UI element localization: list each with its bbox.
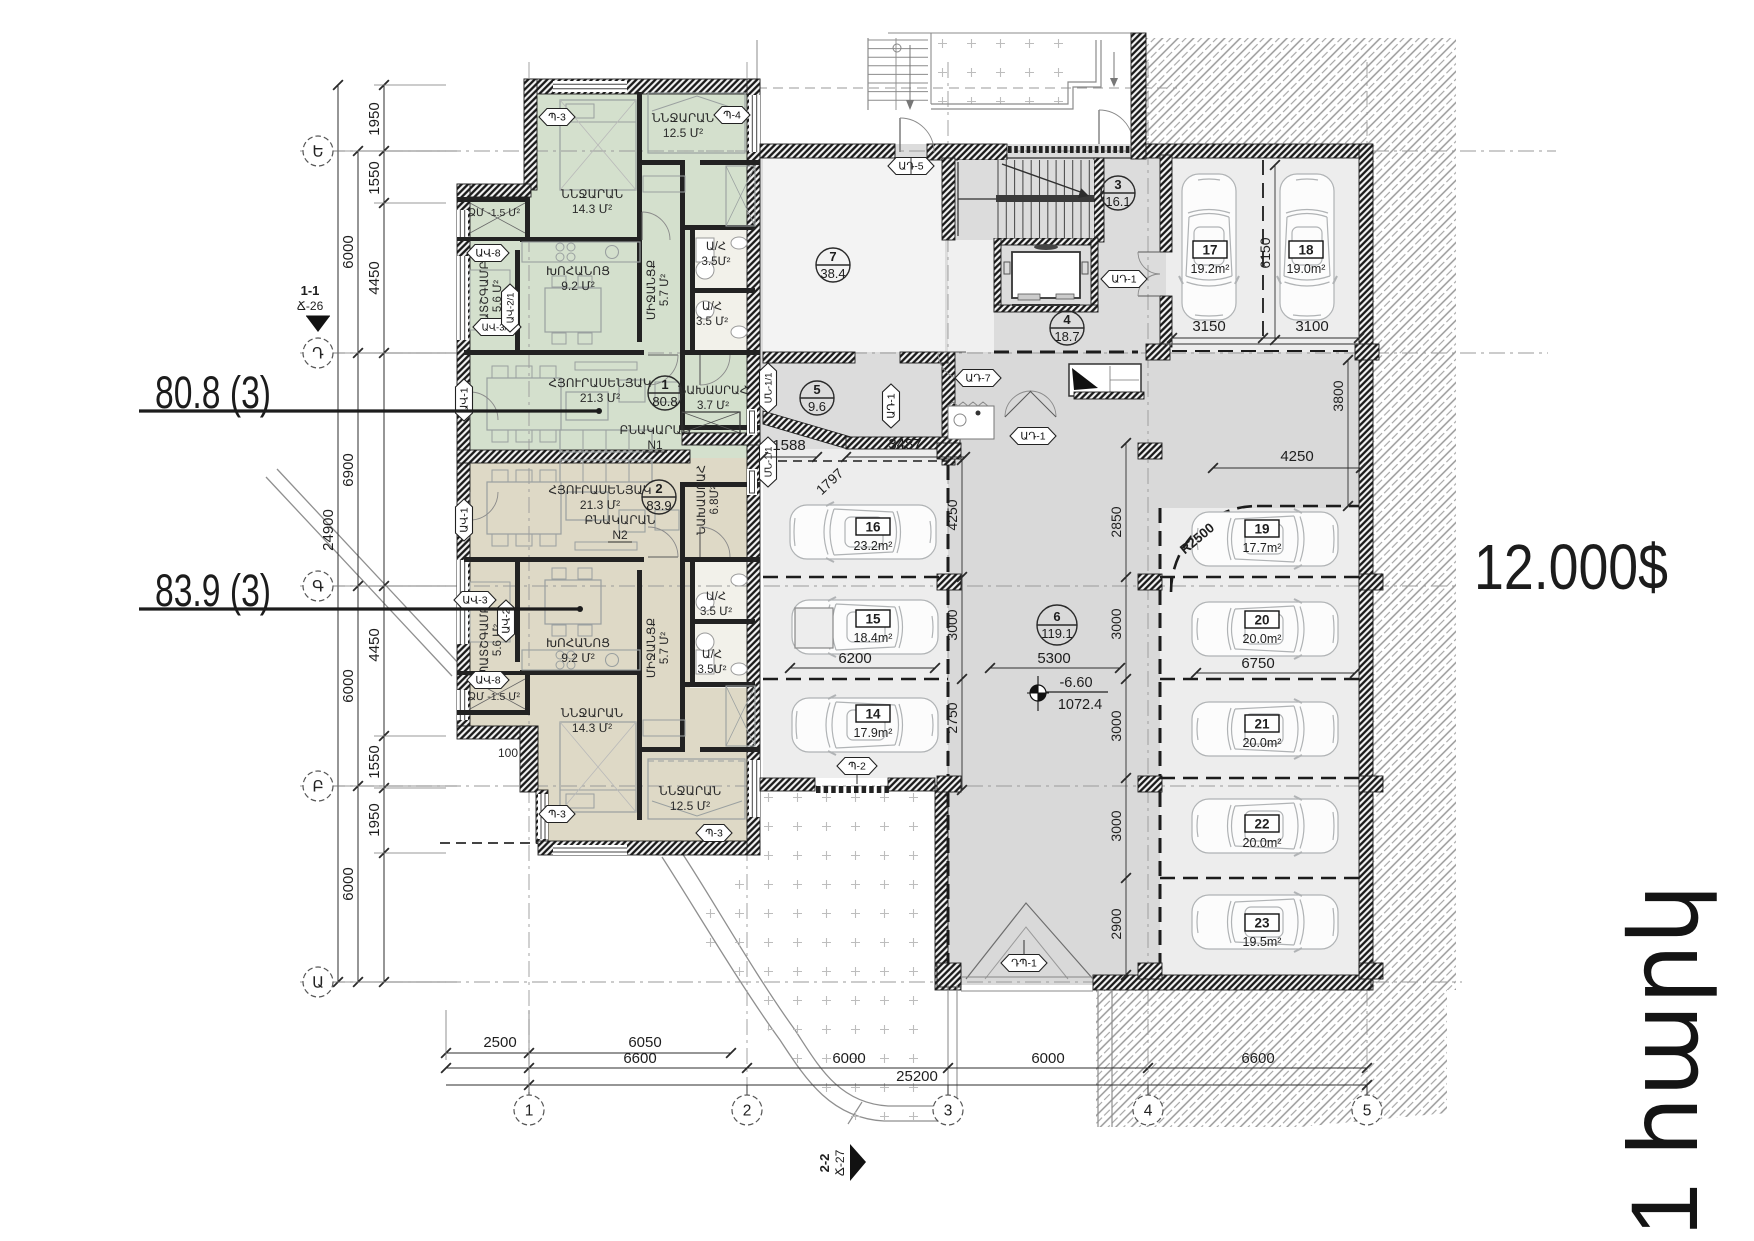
svg-text:20.0m²: 20.0m² xyxy=(1243,736,1282,750)
svg-text:19.0m²: 19.0m² xyxy=(1287,262,1326,276)
svg-text:12.000$: 12.000$ xyxy=(1474,531,1668,603)
svg-text:6600: 6600 xyxy=(623,1050,656,1067)
svg-text:2900: 2900 xyxy=(1108,908,1124,939)
svg-text:Ճ-27: Ճ-27 xyxy=(833,1149,847,1176)
svg-text:2850: 2850 xyxy=(1108,506,1124,537)
svg-text:ՁՄ -1.5 Մ²: ՁՄ -1.5 Մ² xyxy=(468,207,521,219)
svg-text:3100: 3100 xyxy=(1295,318,1328,335)
svg-text:ԲՆԱԿԱՐԱՆ: ԲՆԱԿԱՐԱՆ xyxy=(585,513,656,527)
svg-text:25200: 25200 xyxy=(896,1068,938,1085)
svg-text:9.2 Մ²: 9.2 Մ² xyxy=(561,279,595,293)
svg-text:N1: N1 xyxy=(647,438,663,452)
svg-text:20.0m²: 20.0m² xyxy=(1243,632,1282,646)
svg-text:3.7 Մ²: 3.7 Մ² xyxy=(697,400,729,412)
svg-text:3.5 Մ²: 3.5 Մ² xyxy=(700,606,732,618)
svg-text:Պ-2: Պ-2 xyxy=(848,761,866,773)
svg-text:ԱՎ-2/1: ԱՎ-2/1 xyxy=(506,293,517,324)
svg-text:23.2m²: 23.2m² xyxy=(854,539,893,553)
svg-text:12.5 Մ²: 12.5 Մ² xyxy=(663,126,703,140)
svg-text:19.2m²: 19.2m² xyxy=(1191,262,1230,276)
svg-text:1: 1 xyxy=(525,1103,534,1120)
svg-text:ԱՎ-8: ԱՎ-8 xyxy=(475,675,500,687)
svg-text:5.7 Մ²: 5.7 Մ² xyxy=(659,632,671,664)
svg-text:9.6: 9.6 xyxy=(808,399,826,414)
svg-text:1950: 1950 xyxy=(366,102,383,135)
svg-text:3000: 3000 xyxy=(944,609,960,640)
svg-text:6900: 6900 xyxy=(340,453,357,486)
svg-text:1950: 1950 xyxy=(366,803,383,836)
svg-text:ՄԻՋԱՆՑՔ: ՄԻՋԱՆՑՔ xyxy=(646,260,658,321)
svg-text:Պ-3: Պ-3 xyxy=(548,112,566,124)
svg-text:12.5 Մ²: 12.5 Մ² xyxy=(670,799,710,813)
svg-text:ՆՆՋԱՐԱՆ: ՆՆՋԱՐԱՆ xyxy=(561,706,623,720)
svg-text:4450: 4450 xyxy=(366,261,383,294)
svg-text:6000: 6000 xyxy=(340,669,357,702)
svg-text:16: 16 xyxy=(865,520,881,535)
svg-text:18.7: 18.7 xyxy=(1054,329,1079,344)
svg-text:Պ-3: Պ-3 xyxy=(548,809,566,821)
svg-text:19: 19 xyxy=(1254,522,1269,537)
svg-text:9.2 Մ²: 9.2 Մ² xyxy=(561,651,595,665)
svg-text:17.7m²: 17.7m² xyxy=(1243,541,1282,555)
svg-text:3800: 3800 xyxy=(1330,380,1346,411)
svg-text:6.8Մ²: 6.8Մ² xyxy=(709,485,721,514)
svg-text:Ա/Հ: Ա/Հ xyxy=(706,241,726,253)
svg-text:3.5Մ²: 3.5Մ² xyxy=(702,256,731,268)
svg-text:ԱԴ-1: ԱԴ-1 xyxy=(1020,431,1045,443)
svg-text:19.5m²: 19.5m² xyxy=(1243,935,1282,949)
svg-text:Ա/Հ: Ա/Հ xyxy=(702,301,722,313)
svg-text:4250: 4250 xyxy=(1280,448,1313,465)
svg-text:ՆՆՋԱՐԱՆ: ՆՆՋԱՐԱՆ xyxy=(652,111,714,125)
svg-text:Ա: Ա xyxy=(312,975,324,992)
svg-text:3000: 3000 xyxy=(1108,810,1124,841)
svg-text:ՄԻՋԱՆՑՔ: ՄԻՋԱՆՑՔ xyxy=(646,618,658,679)
svg-text:-6.60: -6.60 xyxy=(1059,675,1092,691)
svg-text:3.5 Մ²: 3.5 Մ² xyxy=(696,316,728,328)
svg-text:ԱՎ-1: ԱՎ-1 xyxy=(459,387,471,412)
svg-text:ԽՈՀԱՆՈՑ: ԽՈՀԱՆՈՑ xyxy=(546,636,610,650)
svg-text:5.7 Մ²: 5.7 Մ² xyxy=(659,274,671,306)
svg-text:17.9m²: 17.9m² xyxy=(854,726,893,740)
svg-text:5: 5 xyxy=(1363,1103,1372,1120)
svg-text:ՆՆՋԱՐԱՆ: ՆՆՋԱՐԱՆ xyxy=(561,187,623,201)
svg-text:Ճ-26: Ճ-26 xyxy=(297,299,324,313)
svg-text:38.4: 38.4 xyxy=(820,266,845,281)
svg-text:6750: 6750 xyxy=(1241,655,1274,672)
svg-text:14.3 Մ²: 14.3 Մ² xyxy=(572,721,612,735)
svg-text:23: 23 xyxy=(1254,916,1270,931)
svg-text:83.9: 83.9 xyxy=(646,498,671,513)
svg-text:2750: 2750 xyxy=(944,702,960,733)
svg-text:21: 21 xyxy=(1254,717,1270,732)
svg-text:2: 2 xyxy=(655,481,662,496)
svg-text:ՊԱՏՇԳԱՄԲ: ՊԱՏՇԳԱՄԲ xyxy=(479,605,491,675)
svg-text:15: 15 xyxy=(865,612,881,627)
svg-text:80.8: 80.8 xyxy=(652,394,677,409)
svg-text:ՀՅՈՒՐԱՍԵՆՅԱԿ: ՀՅՈՒՐԱՍԵՆՅԱԿ xyxy=(548,376,651,390)
svg-text:3150: 3150 xyxy=(1192,318,1225,335)
svg-text:Դ: Դ xyxy=(312,346,324,363)
svg-text:20.0m²: 20.0m² xyxy=(1243,836,1282,850)
svg-text:2-2: 2-2 xyxy=(817,1154,832,1173)
svg-text:18: 18 xyxy=(1298,243,1314,258)
svg-text:1 հարկ: 1 հարկ xyxy=(1612,884,1718,1236)
svg-text:ՀՅՈՒՐԱՍԵՆՅԱԿ: ՀՅՈՒՐԱՍԵՆՅԱԿ xyxy=(548,483,651,497)
svg-text:1550: 1550 xyxy=(366,745,383,778)
svg-text:Ա/Հ: Ա/Հ xyxy=(706,591,726,603)
svg-text:ԲՆԱԿԱՐԱՆ: ԲՆԱԿԱՐԱՆ xyxy=(620,423,691,437)
svg-text:6600: 6600 xyxy=(1241,1050,1274,1067)
svg-text:17: 17 xyxy=(1202,243,1217,258)
svg-text:21.3 Մ²: 21.3 Մ² xyxy=(580,391,620,405)
svg-text:14: 14 xyxy=(865,707,881,722)
svg-text:20: 20 xyxy=(1254,613,1269,628)
svg-text:22: 22 xyxy=(1254,817,1269,832)
svg-text:3: 3 xyxy=(944,1103,953,1120)
svg-text:3000: 3000 xyxy=(1108,608,1124,639)
svg-text:6000: 6000 xyxy=(1031,1050,1064,1067)
svg-text:ԽՈՀԱՆՈՑ: ԽՈՀԱՆՈՑ xyxy=(546,264,610,278)
svg-text:Բ: Բ xyxy=(312,779,323,796)
svg-text:ԱԴ-1: ԱԴ-1 xyxy=(1111,274,1136,286)
svg-text:119.1: 119.1 xyxy=(1041,626,1073,641)
svg-text:ԴՊ-1: ԴՊ-1 xyxy=(1011,958,1037,970)
svg-text:6000: 6000 xyxy=(832,1050,865,1067)
svg-text:ՆՆՋԱՐԱՆ: ՆՆՋԱՐԱՆ xyxy=(659,784,721,798)
svg-text:24900: 24900 xyxy=(320,509,337,551)
svg-text:1550: 1550 xyxy=(366,161,383,194)
svg-text:Պ-3: Պ-3 xyxy=(705,828,723,840)
svg-text:ԱՎ-8: ԱՎ-8 xyxy=(475,248,500,260)
svg-text:6200: 6200 xyxy=(838,650,871,667)
svg-text:16.1: 16.1 xyxy=(1105,194,1130,209)
svg-text:5: 5 xyxy=(813,382,820,397)
svg-text:ԱՎ-3: ԱՎ-3 xyxy=(462,595,487,607)
svg-text:ԱԴ-1: ԱԴ-1 xyxy=(886,393,898,418)
svg-text:100: 100 xyxy=(498,746,518,760)
svg-text:3000: 3000 xyxy=(1108,710,1124,741)
svg-text:ՁՄ -1.5 Մ²: ՁՄ -1.5 Մ² xyxy=(468,691,521,703)
svg-text:6: 6 xyxy=(1053,609,1060,624)
svg-text:4450: 4450 xyxy=(366,628,383,661)
svg-text:1588: 1588 xyxy=(772,437,805,454)
svg-text:Գ: Գ xyxy=(312,579,324,596)
svg-text:6000: 6000 xyxy=(340,867,357,900)
svg-text:ՄՆ-1/1: ՄՆ-1/1 xyxy=(764,373,775,404)
svg-text:N2: N2 xyxy=(612,528,628,542)
svg-text:4: 4 xyxy=(1144,1103,1153,1120)
svg-text:1072.4: 1072.4 xyxy=(1058,697,1102,713)
svg-text:4: 4 xyxy=(1063,312,1071,327)
svg-text:ԱԴ-7: ԱԴ-7 xyxy=(965,373,990,385)
svg-text:21.3 Մ²: 21.3 Մ² xyxy=(580,498,620,512)
svg-text:1-1: 1-1 xyxy=(301,283,320,298)
svg-text:Ե: Ե xyxy=(312,144,323,161)
svg-text:ՆԱԽԱՍՐԱՀ: ՆԱԽԱՍՐԱՀ xyxy=(678,385,748,397)
svg-text:14.3 Մ²: 14.3 Մ² xyxy=(572,202,612,216)
svg-text:7: 7 xyxy=(829,249,836,264)
svg-text:3487: 3487 xyxy=(888,436,921,453)
svg-text:Պ-4: Պ-4 xyxy=(723,110,741,122)
svg-text:2500: 2500 xyxy=(483,1034,516,1051)
svg-text:6150: 6150 xyxy=(1257,237,1273,268)
svg-text:18.4m²: 18.4m² xyxy=(854,631,893,645)
svg-text:ԱՎ-1: ԱՎ-1 xyxy=(459,507,471,532)
svg-text:6050: 6050 xyxy=(628,1034,661,1051)
svg-text:4250: 4250 xyxy=(944,499,960,530)
svg-text:3.5Մ²: 3.5Մ² xyxy=(698,664,727,676)
svg-text:Ա/Հ: Ա/Հ xyxy=(702,649,722,661)
svg-text:2: 2 xyxy=(743,1103,752,1120)
svg-text:3: 3 xyxy=(1114,177,1121,192)
svg-text:5300: 5300 xyxy=(1037,650,1070,667)
svg-text:ՆԱԽԱՍՐԱՀ: ՆԱԽԱՍՐԱՀ xyxy=(696,465,708,535)
svg-text:6000: 6000 xyxy=(340,235,357,268)
svg-text:ԱՎ-2: ԱՎ-2 xyxy=(501,608,513,633)
svg-text:1: 1 xyxy=(661,377,668,392)
